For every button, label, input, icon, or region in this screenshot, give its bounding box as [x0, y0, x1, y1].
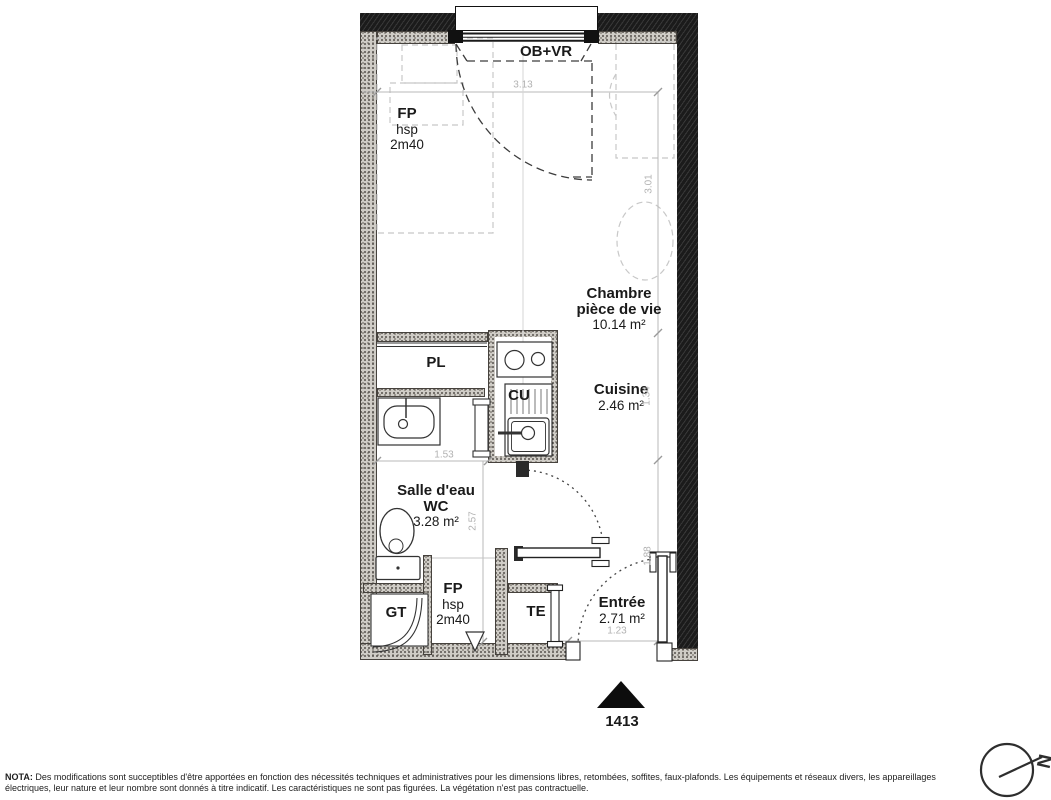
bathroom-door: [514, 461, 609, 567]
room-name: WC: [397, 499, 475, 515]
fp-hsp: hsp: [436, 597, 470, 613]
nota-text: NOTA: Des modifications sont succeptible…: [5, 772, 957, 793]
cooktop: [497, 342, 552, 377]
dim-right-lower: 1.88: [643, 546, 654, 565]
washbasin: [378, 398, 440, 445]
duct-box: [371, 594, 428, 652]
dim-bath-width: 1.53: [434, 450, 453, 461]
table-dashed: [617, 202, 673, 280]
nota-label: NOTA:: [5, 772, 33, 782]
room-name: pièce de vie: [576, 302, 661, 318]
kitchen-unit-label: CU: [508, 388, 530, 404]
room-label-salle-eau: Salle d'eau WC 3.28 m²: [397, 483, 475, 530]
room-area: 10.14 m²: [576, 317, 661, 333]
ceiling-note-top: FP hsp 2m40: [390, 106, 424, 153]
dim-right-middle: 1.34: [642, 386, 653, 405]
window-label: OB+VR: [520, 44, 572, 60]
bathroom-door-arc: [522, 470, 603, 543]
room-area: 2.46 m²: [594, 398, 648, 414]
room-name: Cuisine: [594, 382, 648, 398]
lot-number: 1413: [605, 713, 638, 730]
room-area: 3.28 m²: [397, 514, 475, 530]
room-label-entree: Entrée 2.71 m²: [599, 595, 646, 626]
dim-bath-height: 2.57: [468, 511, 479, 530]
dim-entry-width: 1.23: [607, 626, 626, 637]
wardrobe-dashed: [616, 42, 674, 158]
room-label-chambre: Chambre pièce de vie 10.14 m²: [576, 286, 661, 333]
window-frame: [448, 30, 599, 43]
floor-plan: OB+VR FP hsp 2m40 Chambre pièce de vie 1…: [0, 0, 1051, 800]
lot-triangle: [597, 681, 645, 708]
faucet-knob: [522, 427, 535, 440]
north-circle: [981, 744, 1033, 796]
window-swing-dashed: [456, 44, 592, 180]
dim-right-upper: 3.01: [644, 174, 655, 193]
room-area: 2.71 m²: [599, 611, 646, 627]
radiator: [473, 399, 490, 457]
nota-body: Des modifications sont succeptibles d'êt…: [5, 772, 936, 793]
dim-top-width: 3.13: [513, 80, 532, 91]
panel-door: [548, 585, 563, 647]
ceiling-dashed-zones: [377, 38, 674, 280]
closet-label: PL: [426, 355, 445, 371]
fp-height: 2m40: [390, 137, 424, 153]
room-name: Chambre: [576, 286, 661, 302]
bathroom-door-leaf: [517, 548, 600, 558]
fp-code: FP: [390, 106, 424, 122]
fp-code: FP: [436, 581, 470, 597]
swing-arrow: [610, 74, 617, 116]
room-name: Salle d'eau: [397, 483, 475, 499]
fp-height: 2m40: [436, 612, 470, 628]
entrance-door-leaf: [658, 556, 667, 642]
closet-front: [377, 343, 487, 347]
room-name: Entrée: [599, 595, 646, 611]
panel-label: TE: [526, 604, 545, 620]
triangle-symbol: [466, 632, 484, 651]
duct-label: GT: [386, 605, 407, 621]
ceiling-note-bottom: FP hsp 2m40: [436, 581, 470, 628]
entrance-jamb: [566, 642, 580, 660]
fp-hsp: hsp: [390, 122, 424, 138]
room-label-cuisine: Cuisine 2.46 m²: [594, 382, 648, 413]
